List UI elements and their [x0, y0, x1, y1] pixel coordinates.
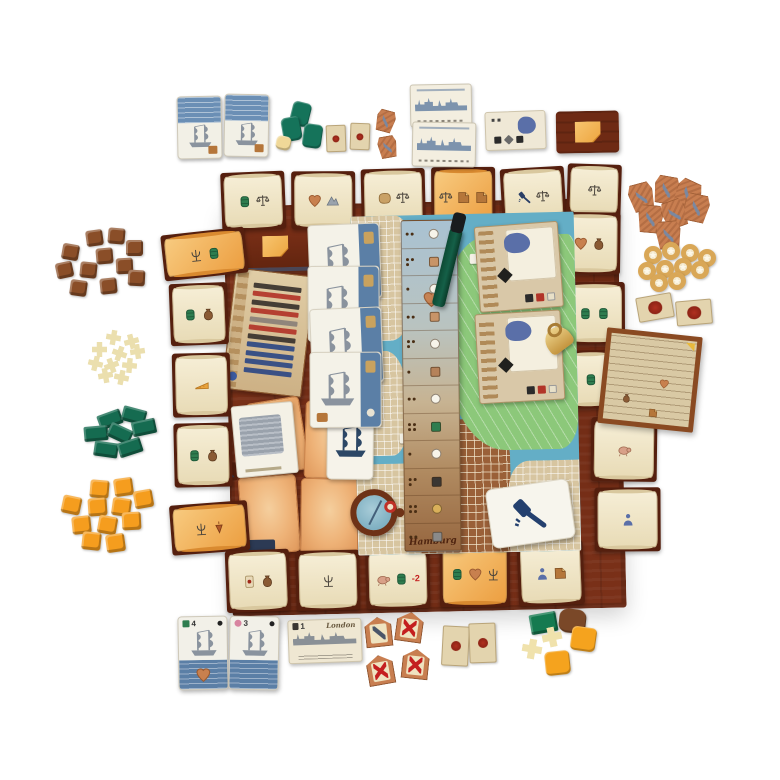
card-band	[179, 660, 227, 690]
green-pads-top-piece	[288, 100, 312, 128]
sack-icon	[591, 236, 606, 251]
citizen-figure	[518, 116, 537, 134]
cream-tokens-piece	[121, 357, 137, 373]
ship-icon	[186, 122, 214, 150]
dot-tiles-top-piece	[350, 123, 371, 151]
card-icons	[494, 136, 523, 144]
building-card	[231, 401, 299, 478]
dot-tiles-bottom-piece	[441, 625, 470, 666]
track-cell	[405, 523, 460, 551]
brown-cubes-piece	[55, 260, 75, 279]
card-icons	[527, 385, 557, 395]
note-icon	[647, 407, 659, 419]
cream-tokens-piece	[110, 344, 129, 363]
green-pads-top-piece	[301, 123, 323, 149]
green-blocks-piece	[116, 437, 143, 459]
ship-icon	[316, 363, 358, 415]
cream-tokens-piece	[113, 369, 131, 387]
track-cell	[404, 386, 459, 414]
rules-chart	[221, 267, 315, 398]
barrel-icon	[182, 307, 198, 323]
seal-tiles-right-piece	[675, 298, 713, 326]
pretzels-right-piece	[626, 180, 657, 214]
figure-card	[484, 110, 546, 151]
scales-icon	[254, 193, 270, 209]
scales-icon	[534, 188, 550, 204]
orange-cubes-piece	[71, 515, 92, 535]
ship-card-blue	[223, 94, 269, 158]
card-icons	[525, 292, 556, 302]
edge-card	[594, 487, 660, 551]
rings-right-piece	[698, 249, 716, 267]
track-cell	[403, 331, 458, 359]
ship-card	[309, 352, 381, 428]
barrel-icon	[394, 571, 409, 586]
rings-right-piece	[650, 274, 668, 292]
orange-cubes-piece	[111, 497, 132, 517]
rings-right-piece	[656, 260, 674, 278]
rings-right-piece	[662, 242, 680, 260]
scales-icon	[395, 190, 410, 205]
pretzels-right-piece	[670, 176, 704, 212]
br-orange-piece	[544, 650, 571, 676]
building-image	[239, 414, 284, 457]
barrel-icon	[236, 193, 252, 209]
sack-icon	[620, 392, 632, 404]
house-x-piece	[365, 653, 397, 687]
pig-icon	[616, 442, 631, 457]
sack-icon	[200, 306, 216, 322]
top-icon	[211, 519, 227, 535]
barrel-icon	[583, 372, 598, 387]
brown-cubes-piece	[69, 279, 88, 297]
house-x-piece	[394, 610, 425, 643]
heart-icon	[573, 236, 588, 251]
brown-cubes-piece	[95, 247, 113, 264]
barrel-icon	[449, 566, 464, 581]
brown-cubes-piece	[128, 270, 146, 287]
pretzels-right-piece	[655, 220, 682, 250]
brown-cubes-piece	[61, 243, 81, 262]
cream-tokens-piece	[97, 367, 114, 384]
cream-pad-top-piece	[275, 135, 293, 152]
edge-card	[566, 163, 622, 217]
trident-icon	[320, 573, 335, 588]
card-band	[360, 353, 380, 427]
orange-cubes-piece	[133, 488, 155, 509]
ship-icon	[233, 120, 261, 148]
skyline-icon	[293, 629, 357, 647]
note-icon	[456, 190, 471, 205]
card-deck	[236, 224, 315, 268]
cream-tokens-piece	[129, 343, 146, 360]
green-blocks-piece	[131, 418, 158, 438]
brown-cubes-piece	[85, 229, 104, 247]
dot-tiles-top-piece	[326, 125, 347, 153]
edge-card	[220, 171, 286, 232]
br-orange-piece	[569, 625, 597, 652]
cream-tokens-piece	[122, 332, 140, 350]
boardgame-photo: Hamburg	[0, 0, 780, 780]
orange-cubes-piece	[105, 533, 126, 553]
figure-icon	[534, 566, 550, 582]
heart-icon	[307, 193, 322, 208]
edge-card	[173, 422, 232, 487]
city-name: London	[326, 621, 356, 629]
house-x-piece	[401, 648, 431, 681]
orange-cubes-piece	[81, 531, 102, 551]
sack-icon	[259, 573, 275, 589]
track-cell	[405, 468, 460, 496]
pig-icon	[376, 571, 391, 586]
hide-icon	[377, 190, 392, 205]
brown-cubes-piece	[99, 277, 118, 295]
carddot-icon	[241, 573, 257, 589]
gavel-icon	[516, 189, 532, 205]
orange-cubes-piece	[97, 514, 119, 535]
green-blocks-piece	[93, 440, 119, 458]
ornament-border	[479, 318, 499, 399]
brown-cubes-piece	[116, 258, 134, 275]
brown-cubes-piece	[79, 261, 98, 279]
pretzels-right-piece	[652, 174, 681, 206]
seal-tiles-right-piece	[635, 292, 675, 323]
orange-cubes-piece	[60, 494, 82, 516]
pretzels-right-piece	[658, 197, 691, 232]
game-board: Hamburg	[223, 198, 626, 617]
trident-icon	[485, 566, 500, 581]
heart-icon	[658, 378, 670, 390]
note-icon	[474, 189, 489, 204]
ship-card-blue	[176, 96, 222, 160]
track-cell	[405, 496, 460, 524]
sack-icon	[204, 447, 219, 462]
edge-card	[160, 226, 249, 281]
note-icon	[552, 565, 568, 581]
gavel-icon	[508, 491, 553, 536]
heart-icon	[467, 566, 482, 581]
orange-cubes-piece	[113, 477, 134, 497]
edge-card	[295, 550, 360, 611]
ship-card: 3	[228, 616, 279, 691]
cream-tokens-piece	[102, 356, 121, 375]
rings-right-piece	[674, 258, 692, 276]
citizen-card	[474, 221, 564, 313]
edge-card	[172, 352, 231, 417]
edge-card	[169, 282, 229, 346]
scales-icon	[586, 182, 601, 197]
rings-right-piece	[668, 272, 686, 290]
rings-right-piece	[681, 244, 699, 262]
ship-card: 4	[177, 616, 228, 691]
edge-card	[291, 171, 355, 229]
track-cell	[403, 358, 458, 386]
auction-card	[485, 478, 577, 549]
green-blocks-piece	[120, 405, 147, 426]
brown-cubes-piece	[126, 240, 143, 256]
heart-icon	[195, 666, 212, 683]
trident-icon	[187, 247, 204, 264]
rings-right-piece	[644, 246, 662, 264]
scales-icon	[438, 190, 453, 205]
card-value: -2	[412, 574, 420, 583]
ship-icon	[239, 627, 272, 660]
orange-cubes-piece	[87, 497, 107, 516]
barrel-icon	[186, 448, 201, 463]
mini-pretzels-top-piece	[373, 108, 397, 134]
skyline-icon	[417, 135, 472, 153]
house-tools-piece	[364, 616, 394, 649]
green-blocks-piece	[96, 408, 124, 430]
mini-pretzels-top-piece	[376, 135, 399, 160]
green-blocks-piece	[106, 422, 134, 446]
barrel-icon	[205, 245, 222, 262]
edge-card: -2	[365, 548, 430, 609]
trident-icon	[193, 521, 209, 537]
cream-tokens-piece	[86, 354, 104, 372]
edge-card	[169, 500, 251, 556]
skyline-card	[412, 121, 477, 167]
orange-cubes-piece	[122, 512, 142, 531]
br-green-piece	[528, 611, 558, 635]
cheese-icon	[194, 377, 209, 392]
edge-card	[225, 549, 291, 614]
pretzels-right-piece	[681, 192, 711, 225]
brown-cubes-piece	[107, 227, 125, 244]
track-cell	[403, 303, 458, 331]
skyline-icon	[414, 96, 467, 113]
br-cream-piece	[520, 637, 543, 660]
orange-cubes-piece	[89, 479, 109, 499]
ship-icon	[188, 627, 221, 660]
note-icon	[574, 121, 600, 142]
note-icon	[262, 236, 288, 258]
ornament-border	[478, 231, 499, 308]
card-band	[177, 97, 220, 123]
br-brown-piece	[558, 608, 587, 635]
pretzels-right-piece	[637, 204, 664, 234]
dot-tiles-bottom-piece	[468, 623, 496, 664]
card-band	[225, 95, 268, 121]
green-pads-top-piece	[280, 116, 303, 143]
city-bonus-card: 1 London	[287, 618, 362, 665]
figure-icon	[620, 512, 635, 527]
br-cream-piece	[540, 625, 564, 649]
track-cell	[404, 441, 459, 469]
green-blocks-piece	[83, 425, 108, 442]
cream-tokens-piece	[105, 329, 122, 346]
card-band	[229, 660, 277, 690]
barrel-icon	[577, 306, 592, 321]
mountain-icon	[325, 193, 340, 208]
rings-right-piece	[691, 261, 709, 279]
rings-right-piece	[638, 262, 656, 280]
note-card	[556, 110, 620, 153]
reference-board	[597, 327, 703, 433]
track-cell	[404, 413, 459, 441]
barrel-icon	[595, 306, 610, 321]
cream-tokens-piece	[92, 342, 107, 357]
